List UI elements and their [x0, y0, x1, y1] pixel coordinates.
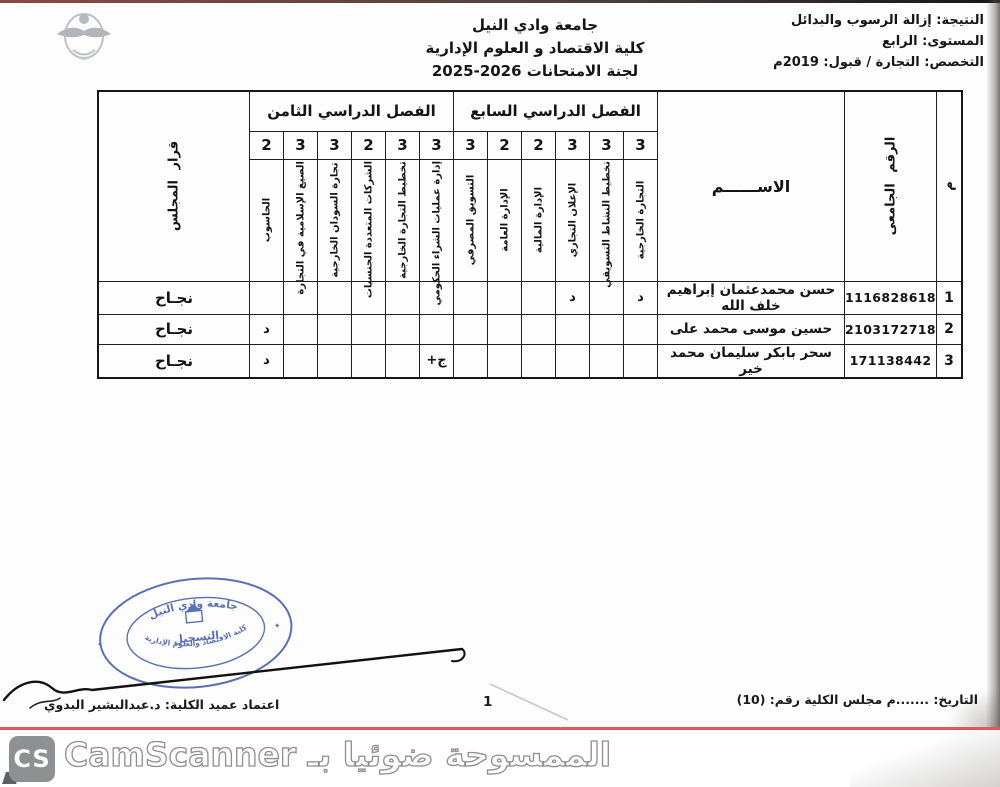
grade-cell: د	[624, 281, 658, 314]
document-header-center: جامعة وادي النيل كلية الاقتصاد و العلوم …	[370, 14, 700, 83]
grade-cell	[590, 344, 624, 378]
dean-approval-line: اعتماد عميد الكلية: د.عبدالبشير البدوي	[44, 697, 279, 712]
grade-cell	[352, 314, 386, 344]
grade-cell: ج+	[420, 344, 454, 378]
registrar-stamp: جامعة وادي النيل كلية الاقتصاد والعلوم ا…	[89, 565, 302, 705]
grade-cell	[454, 314, 488, 344]
camscanner-watermark-text: الممسوحة ضوئيا بـ CamScanner	[64, 735, 611, 774]
grade-cell	[318, 281, 352, 314]
university-number-cell: 171138442	[845, 344, 937, 378]
course-header: الصيغ الإسلامية في التجارة	[284, 159, 318, 281]
course-header: الإدارة المالية	[522, 159, 556, 281]
grade-cell	[250, 281, 284, 314]
grade-cell	[556, 344, 590, 378]
serial-cell: 3	[937, 344, 963, 378]
grade-cell	[590, 314, 624, 344]
table-row: 3 171138442 سحر بابكر سليمان محمد خير ج+…	[98, 344, 962, 378]
university-number-cell: 2103172718	[845, 314, 937, 344]
scan-top-edge	[0, 0, 1000, 3]
grade-cell	[284, 344, 318, 378]
course-header: الحاسوب	[250, 159, 284, 281]
grade-cell	[488, 344, 522, 378]
council-cell: نجـاح	[98, 314, 250, 344]
course-header: تخطيط النشاط التسويقي	[590, 159, 624, 281]
semester7-header: الفصل الدراسي السابع	[454, 91, 658, 131]
name-cell: سحر بابكر سليمان محمد خير	[658, 344, 845, 378]
semester8-header: الفصل الدراسي الثامن	[250, 91, 454, 131]
grade-cell	[386, 344, 420, 378]
grade-cell: د	[250, 344, 284, 378]
college-name: كلية الاقتصاد و العلوم الإدارية	[370, 37, 700, 60]
course-header: الإعلان التجاري	[556, 159, 590, 281]
serial-cell: 1	[937, 281, 963, 314]
grade-cell	[624, 344, 658, 378]
course-hours: 3	[556, 131, 590, 159]
university-number-cell: 1116828618	[845, 281, 937, 314]
course-header: تخطيط التجارة الخارجية	[386, 159, 420, 281]
council-decision-header: قرار المجلس	[98, 91, 250, 281]
council-cell: نجـاح	[98, 344, 250, 378]
major-line: التخصص: التجارة / قبول: 2019م	[744, 52, 984, 73]
course-header: الشركات المتعددة الجنسيات	[352, 159, 386, 281]
university-logo	[52, 6, 116, 70]
date-line: التاريخ: .......م مجلس الكلية رقم: (10)	[737, 692, 978, 707]
course-header: تجارة السودان الخارجية	[318, 159, 352, 281]
svg-text:✦: ✦	[96, 640, 104, 650]
university-emblem-icon	[52, 6, 116, 66]
table-row: 1 1116828618 حسن محمدعثمان إبراهيم خلف ا…	[98, 281, 962, 314]
grade-cell	[318, 314, 352, 344]
serial-cell: 2	[937, 314, 963, 344]
svg-text:✦: ✦	[273, 621, 281, 631]
grade-cell	[488, 281, 522, 314]
course-hours: 3	[318, 131, 352, 159]
course-header: التجارة الخارجية	[624, 159, 658, 281]
results-table: م الرقم الجامعى الاســــــم الفصل الدراس…	[97, 90, 963, 379]
course-hours: 3	[386, 131, 420, 159]
course-header: إدارة عمليات الشراء الحكومي	[420, 159, 454, 281]
results-table-wrapper: م الرقم الجامعى الاســــــم الفصل الدراس…	[97, 90, 963, 379]
grade-cell	[522, 344, 556, 378]
grade-cell	[624, 314, 658, 344]
course-hours: 2	[250, 131, 284, 159]
grade-cell	[454, 344, 488, 378]
grade-cell	[522, 281, 556, 314]
course-header: الإدارة العامة	[488, 159, 522, 281]
strip-shadow	[850, 730, 1000, 787]
scanned-page: جامعة وادي النيل كلية الاقتصاد و العلوم …	[0, 0, 1000, 730]
university-number-header: الرقم الجامعى	[845, 91, 937, 281]
course-hours: 2	[352, 131, 386, 159]
serial-header: م	[937, 91, 963, 281]
course-hours: 3	[420, 131, 454, 159]
course-hours: 3	[454, 131, 488, 159]
page-number: 1	[483, 694, 492, 710]
document-header-right: النتيجة: إزالة الرسوب والبدائل المستوى: …	[744, 10, 984, 73]
grade-cell	[318, 344, 352, 378]
grade-cell	[386, 281, 420, 314]
committee-line: لجنة الامتحانات 2026-2025	[370, 60, 700, 83]
course-hours: 3	[590, 131, 624, 159]
grade-cell	[352, 344, 386, 378]
result-line: النتيجة: إزالة الرسوب والبدائل	[744, 10, 984, 31]
grade-cell	[556, 314, 590, 344]
grade-cell	[522, 314, 556, 344]
level-line: المستوى: الرابع	[744, 31, 984, 52]
camscanner-logo-icon: CS	[9, 736, 55, 782]
university-name: جامعة وادي النيل	[370, 14, 700, 37]
grade-cell	[420, 314, 454, 344]
name-cell: حسين موسى محمد على	[658, 314, 845, 344]
table-row: 2 2103172718 حسين موسى محمد على د نجـاح	[98, 314, 962, 344]
name-cell: حسن محمدعثمان إبراهيم خلف الله	[658, 281, 845, 314]
scan-right-edge	[986, 0, 1000, 730]
grade-cell: د	[250, 314, 284, 344]
grade-cell	[454, 281, 488, 314]
course-hours: 3	[284, 131, 318, 159]
course-header: التسويق المصرفي	[454, 159, 488, 281]
name-header: الاســــــم	[658, 91, 845, 281]
course-hours: 2	[488, 131, 522, 159]
grade-cell	[386, 314, 420, 344]
council-cell: نجـاح	[98, 281, 250, 314]
grade-cell	[284, 314, 318, 344]
grade-cell	[488, 314, 522, 344]
camscanner-logo-text: CS	[13, 745, 50, 773]
stamp-icon: جامعة وادي النيل كلية الاقتصاد والعلوم ا…	[89, 565, 302, 701]
course-hours: 3	[624, 131, 658, 159]
course-hours: 2	[522, 131, 556, 159]
grade-cell: د	[556, 281, 590, 314]
